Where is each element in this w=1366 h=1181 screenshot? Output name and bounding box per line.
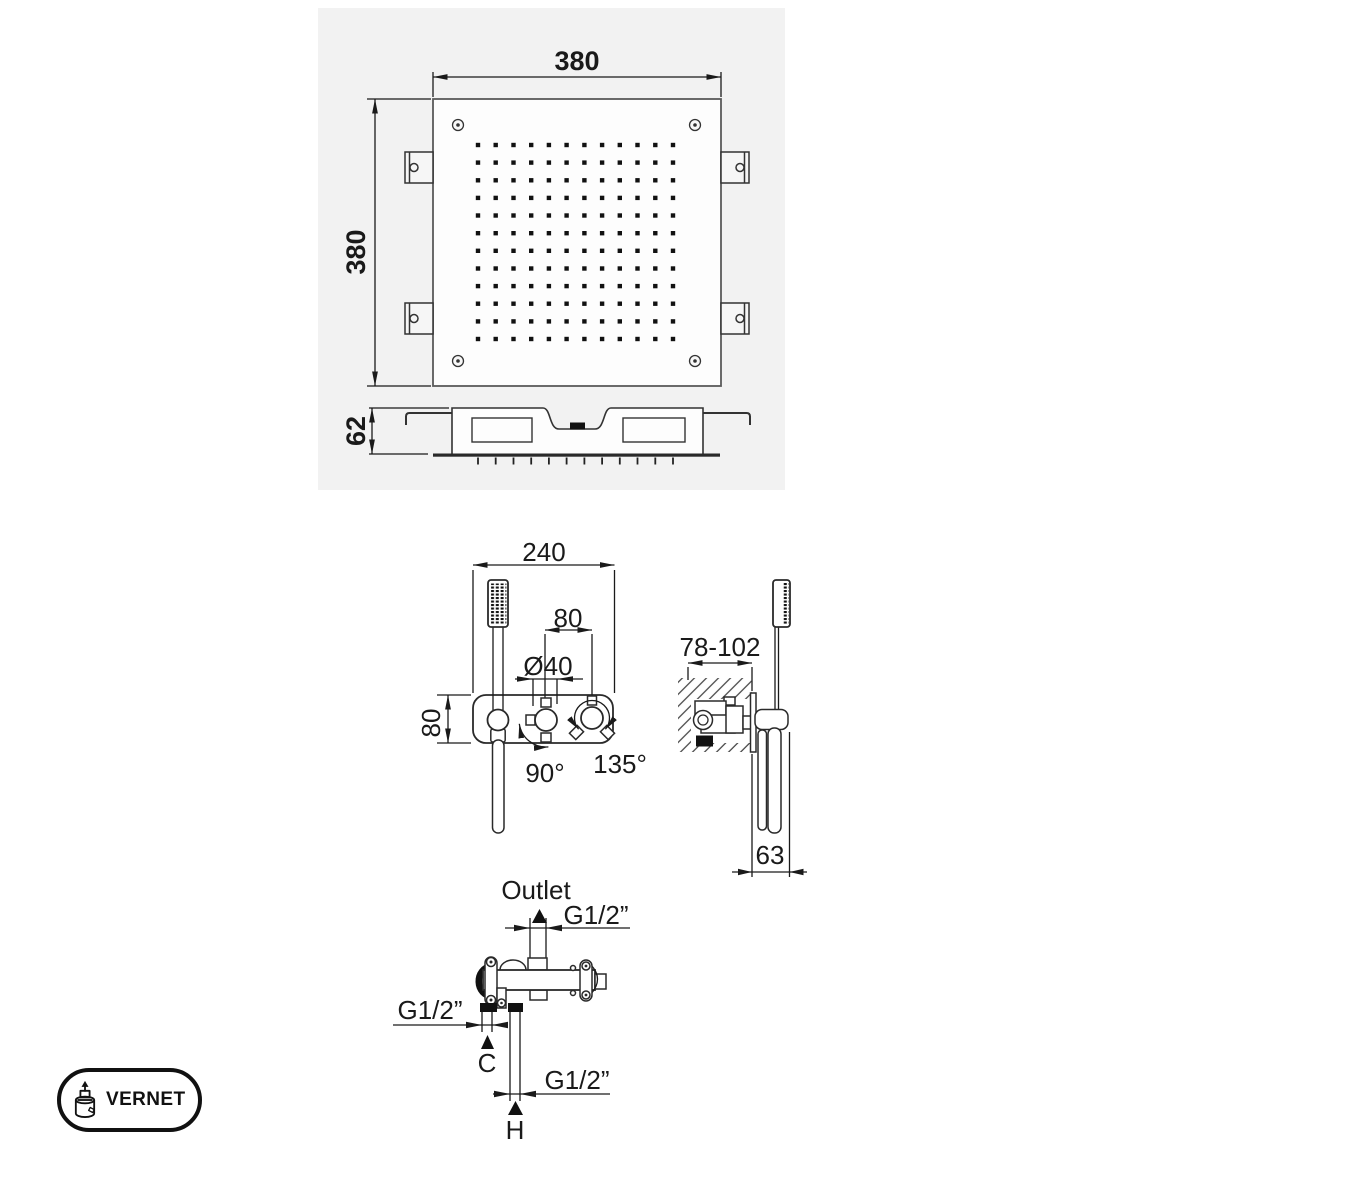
profile-body — [452, 408, 703, 455]
shower-head-panel: 380 380 — [318, 8, 785, 490]
plan-width-label: 380 — [554, 46, 599, 76]
handset-depth-label: 63 — [756, 840, 785, 870]
mounting-bracket-right-bottom — [721, 303, 749, 334]
dim-front-height: 80 — [416, 695, 471, 743]
plan-view: 380 380 — [341, 46, 749, 386]
valve-schematic: Outlet G1/2” G1/2” — [380, 875, 660, 1160]
hot-arrow — [508, 1101, 523, 1115]
brand-name: VERNET — [106, 1089, 185, 1111]
front-width-label: 240 — [522, 537, 565, 567]
dim-outlet-thread: G1/2” — [505, 900, 630, 958]
spring-clip-left — [406, 413, 453, 425]
hand-shower-side — [755, 580, 790, 833]
cold-thread-label: G1/2” — [397, 995, 462, 1025]
profile-view: 62 — [341, 408, 750, 465]
cartridge-icon — [70, 1078, 100, 1122]
valve-body — [479, 957, 606, 1012]
cold-arrow — [481, 1035, 494, 1049]
hot-port — [508, 1003, 523, 1012]
concealed-valve-side — [691, 697, 752, 747]
outlet-arrow — [532, 909, 547, 923]
dim-profile-depth: 62 — [341, 408, 449, 454]
knob-diameter-label: Ø40 — [523, 651, 572, 681]
mixer-front-view: 240 80 80 Ø40 — [416, 537, 647, 833]
knob-centers-label: 80 — [554, 603, 583, 633]
handset-wand-front — [493, 740, 505, 833]
mixer-drawing: 240 80 80 Ø40 — [380, 530, 880, 890]
handset-holder-side — [755, 710, 788, 730]
inlet-connector — [570, 423, 585, 430]
handset-hose-side — [758, 730, 767, 830]
mounting-bracket-left-top — [405, 152, 433, 183]
recess-depth-label: 78-102 — [680, 632, 761, 662]
profile-depth-label: 62 — [341, 416, 371, 446]
handset-face-grid — [491, 584, 507, 624]
mounting-bracket-left-bottom — [405, 303, 433, 334]
dim-plan-width: 380 — [433, 46, 721, 97]
handset-wand-side — [768, 728, 781, 833]
brand-badge: VERNET — [57, 1068, 202, 1132]
front-height-label: 80 — [416, 709, 446, 738]
face-plate-edge — [433, 454, 720, 457]
shower-head-drawing: 380 380 — [318, 8, 785, 490]
spring-clip-right — [703, 413, 750, 425]
dim-plan-height: 380 — [341, 99, 431, 386]
mounting-bracket-right-top — [721, 152, 749, 183]
outlet-label: Outlet — [501, 875, 571, 905]
handset-holder-front — [488, 710, 509, 731]
mixer-side-view: 78-102 — [678, 580, 807, 877]
plan-height-label: 380 — [341, 229, 371, 274]
hot-mark-label: H — [506, 1115, 525, 1145]
spray-ticks — [478, 458, 673, 465]
shower-plate-outline — [433, 99, 721, 386]
outlet-thread-label: G1/2” — [563, 900, 628, 930]
hot-thread-label: G1/2” — [544, 1065, 609, 1095]
swing-left-label: 90° — [525, 758, 564, 788]
swing-right-label: 135° — [593, 749, 647, 779]
cold-port — [480, 1003, 497, 1012]
cold-mark-label: C — [478, 1048, 497, 1078]
